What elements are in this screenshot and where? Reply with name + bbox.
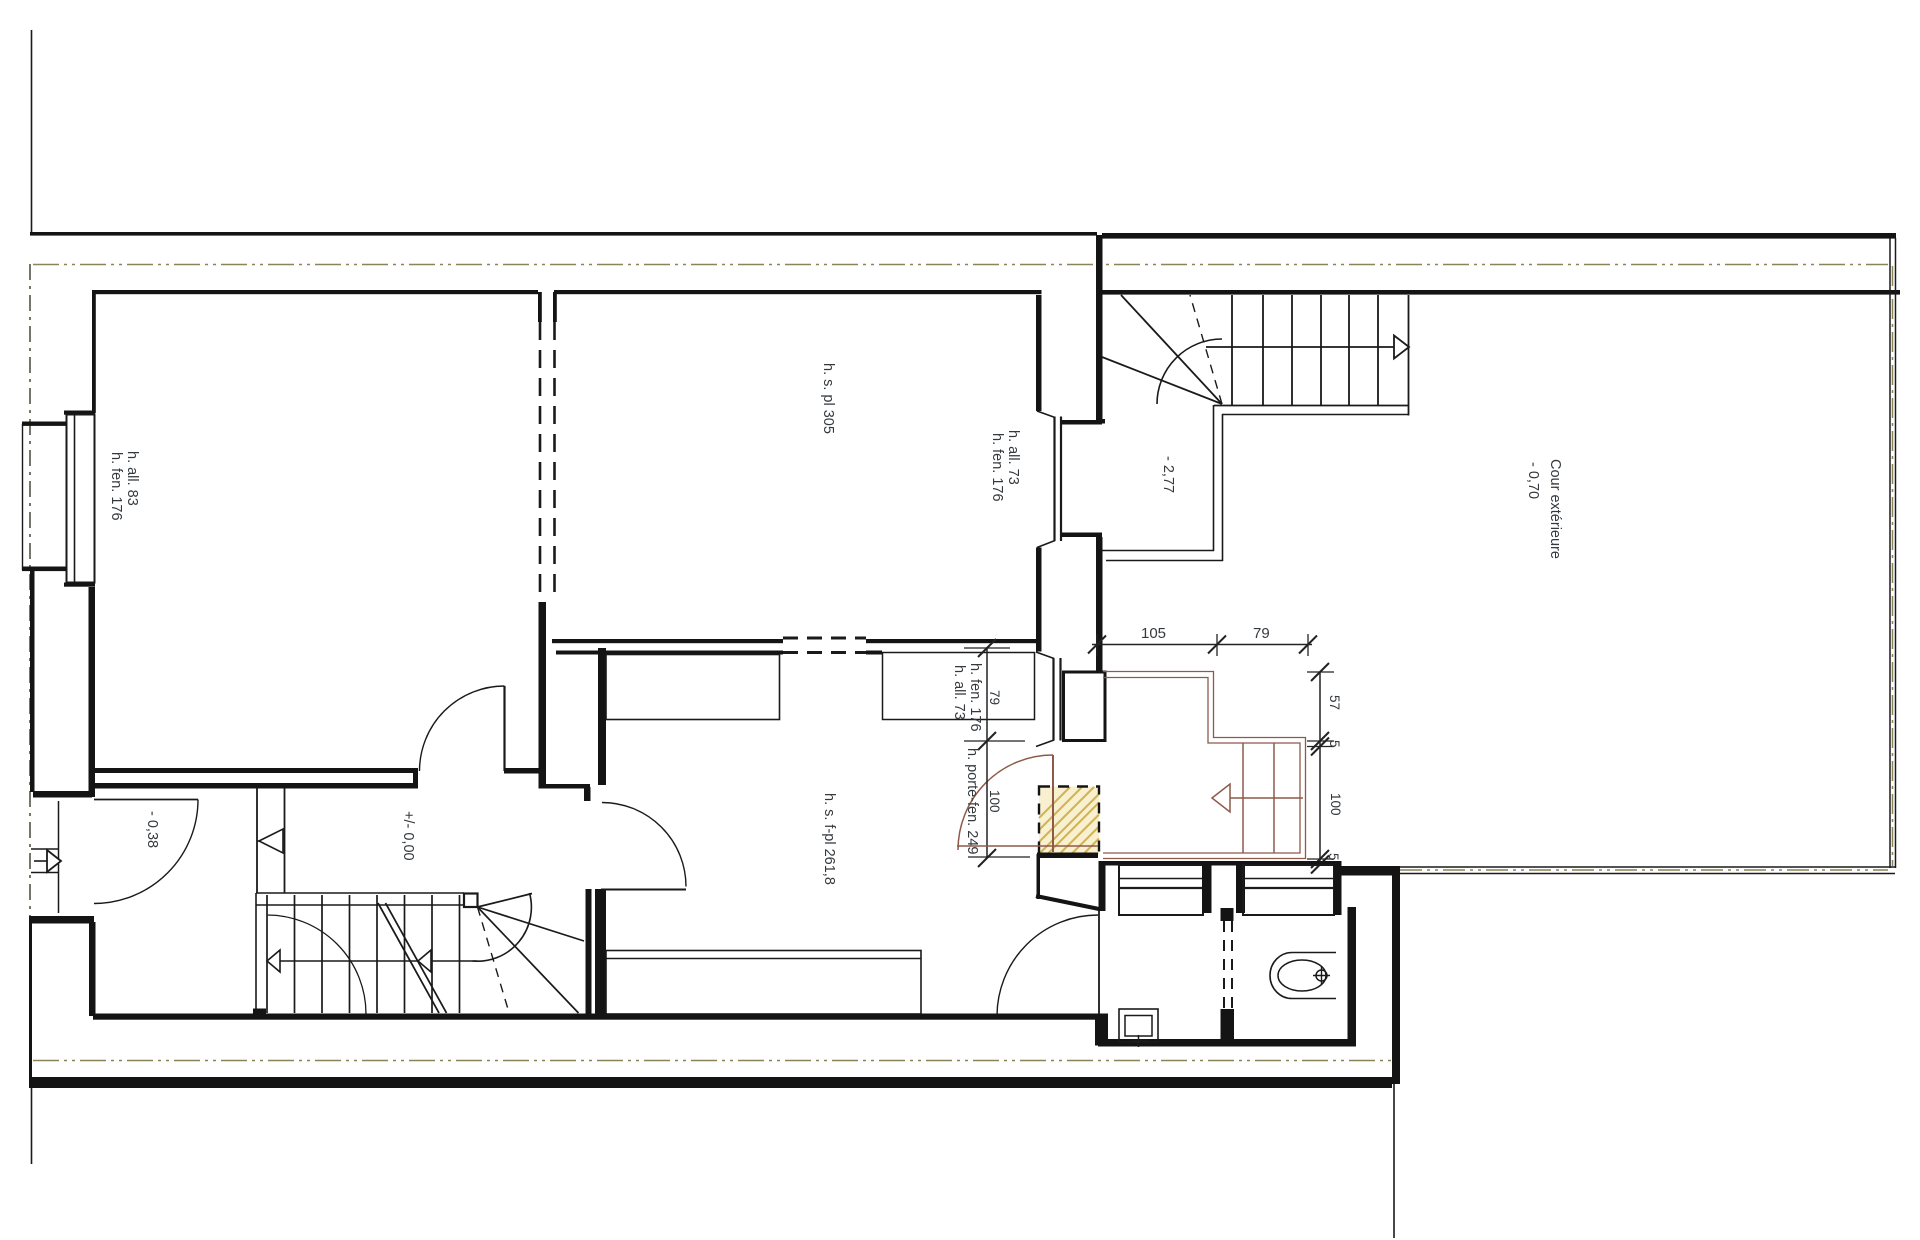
svg-text:h. fen. 176: h. fen. 176 <box>989 433 1005 502</box>
svg-text:- 0,70: - 0,70 <box>1525 462 1541 499</box>
svg-text:h. s. pl 305: h. s. pl 305 <box>820 363 836 434</box>
svg-text:h. all. 73: h. all. 73 <box>951 665 967 720</box>
svg-text:- 2,77: - 2,77 <box>1160 456 1176 493</box>
svg-text:100: 100 <box>1328 793 1343 816</box>
svg-text:h. fen. 176: h. fen. 176 <box>967 663 983 732</box>
svg-text:h. all. 73: h. all. 73 <box>1005 430 1021 485</box>
svg-text:5: 5 <box>1327 740 1342 748</box>
svg-text:5: 5 <box>1326 853 1341 861</box>
svg-text:57: 57 <box>1327 695 1342 710</box>
svg-text:h. porte-fen. 249: h. porte-fen. 249 <box>964 748 980 854</box>
svg-text:h. all. 83: h. all. 83 <box>124 451 140 506</box>
svg-text:Cour extérieure: Cour extérieure <box>1547 459 1563 559</box>
svg-text:h. s. f-pl 261,8: h. s. f-pl 261,8 <box>821 793 837 885</box>
svg-text:h. fen. 176: h. fen. 176 <box>108 452 124 521</box>
svg-text:79: 79 <box>1253 625 1270 642</box>
svg-text:100: 100 <box>987 790 1002 813</box>
svg-text:- 0,38: - 0,38 <box>144 811 160 848</box>
svg-text:+/- 0,00: +/- 0,00 <box>400 811 416 861</box>
svg-text:105: 105 <box>1141 625 1166 642</box>
svg-text:79: 79 <box>987 690 1002 705</box>
